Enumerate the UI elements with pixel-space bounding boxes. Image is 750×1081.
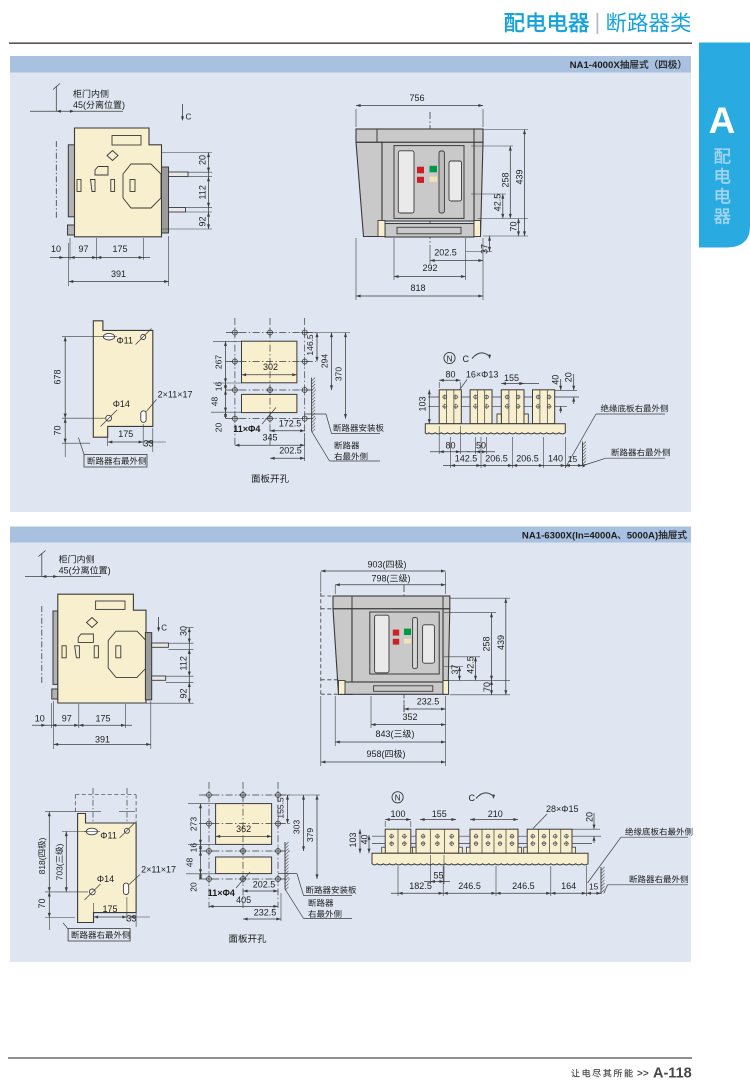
svg-text:292: 292 <box>423 263 438 273</box>
svg-text:33: 33 <box>144 439 154 449</box>
svg-text:182.5: 182.5 <box>409 881 432 891</box>
svg-text:): ) <box>37 837 47 840</box>
svg-text:302: 302 <box>263 362 278 372</box>
svg-text:405: 405 <box>236 895 251 905</box>
svg-text:352: 352 <box>403 712 418 722</box>
svg-text:Φ11: Φ11 <box>117 336 134 346</box>
svg-text:33: 33 <box>127 914 137 924</box>
svg-text:C: C <box>186 113 192 122</box>
svg-text:A: A <box>709 100 736 141</box>
svg-text:45(: 45( <box>59 566 72 576</box>
svg-text:37: 37 <box>480 244 490 254</box>
svg-text:70: 70 <box>482 682 492 692</box>
svg-text:): ) <box>412 729 415 739</box>
svg-text:11×Φ4: 11×Φ4 <box>233 424 260 434</box>
svg-text:202.5: 202.5 <box>279 446 302 456</box>
svg-text:48: 48 <box>209 396 219 406</box>
svg-text:155: 155 <box>504 373 519 383</box>
svg-text:70: 70 <box>509 221 519 231</box>
svg-text:818(: 818( <box>37 857 47 874</box>
svg-text:C: C <box>463 354 470 364</box>
svg-text:16: 16 <box>188 843 198 853</box>
svg-text:Φ14: Φ14 <box>113 399 130 409</box>
svg-text:294: 294 <box>320 354 330 368</box>
svg-text:40: 40 <box>360 834 370 844</box>
svg-text:): ) <box>404 560 407 570</box>
svg-text:92: 92 <box>178 688 188 698</box>
svg-text:70: 70 <box>37 898 47 908</box>
svg-text:): ) <box>54 843 64 846</box>
svg-text:391: 391 <box>111 269 126 279</box>
svg-text:Φ11: Φ11 <box>100 831 117 841</box>
svg-text:175: 175 <box>118 429 133 439</box>
svg-text:103: 103 <box>418 396 428 411</box>
svg-text:175: 175 <box>96 714 111 724</box>
svg-text:20: 20 <box>584 812 594 822</box>
svg-text:28×Φ15: 28×Φ15 <box>546 804 578 814</box>
svg-text:42.5: 42.5 <box>493 194 503 212</box>
svg-text:112: 112 <box>198 185 208 199</box>
svg-text:202.5: 202.5 <box>253 880 276 890</box>
svg-text:5000A): 5000A) <box>627 530 658 541</box>
svg-text:703(: 703( <box>54 863 64 880</box>
svg-text:843(: 843( <box>376 729 394 739</box>
svg-text:): ) <box>108 566 111 576</box>
svg-text:232.5: 232.5 <box>417 697 440 707</box>
svg-text:48: 48 <box>184 857 194 867</box>
svg-text:NA1-6300X(In=4000A: NA1-6300X(In=4000A <box>522 530 618 541</box>
svg-text:N: N <box>447 354 453 363</box>
svg-text:2×11×17: 2×11×17 <box>158 390 193 400</box>
svg-text:): ) <box>408 574 411 584</box>
svg-text:370: 370 <box>334 367 344 381</box>
svg-text:202.5: 202.5 <box>434 248 457 258</box>
svg-text:20: 20 <box>188 882 198 892</box>
svg-text:20: 20 <box>563 372 573 382</box>
svg-text:112: 112 <box>178 656 188 670</box>
svg-text:42.5: 42.5 <box>466 656 476 674</box>
svg-text:10: 10 <box>35 714 45 724</box>
svg-text:Φ14: Φ14 <box>97 874 114 884</box>
svg-text:175: 175 <box>103 904 118 914</box>
svg-text:A-118: A-118 <box>653 1066 692 1081</box>
svg-text:16×Φ13: 16×Φ13 <box>466 370 498 380</box>
svg-text:164: 164 <box>561 881 576 891</box>
svg-text:258: 258 <box>501 172 511 187</box>
svg-text:40: 40 <box>550 375 560 385</box>
svg-text:11×Φ4: 11×Φ4 <box>208 888 235 898</box>
svg-text:>>: >> <box>637 1069 649 1080</box>
svg-text:362: 362 <box>236 824 251 834</box>
svg-text:C: C <box>161 624 167 633</box>
svg-text:103: 103 <box>348 832 358 847</box>
svg-text:97: 97 <box>62 714 72 724</box>
svg-text:232.5: 232.5 <box>254 908 277 918</box>
svg-text:): ) <box>122 100 125 110</box>
svg-text:210: 210 <box>488 809 503 819</box>
svg-text:45(: 45( <box>73 100 86 110</box>
svg-text:246.5: 246.5 <box>512 881 535 891</box>
svg-text:140: 140 <box>548 454 563 464</box>
svg-text:818: 818 <box>411 283 426 293</box>
svg-text:2×11×17: 2×11×17 <box>141 865 176 875</box>
svg-text:20: 20 <box>198 155 208 165</box>
svg-text:10: 10 <box>51 244 61 254</box>
svg-text:37: 37 <box>450 664 460 674</box>
svg-text:55: 55 <box>434 871 444 881</box>
svg-text:903(: 903( <box>368 560 386 570</box>
svg-text:439: 439 <box>496 635 506 650</box>
svg-text:30: 30 <box>178 626 188 636</box>
svg-text:267: 267 <box>213 355 223 369</box>
svg-text:175: 175 <box>113 244 128 254</box>
svg-text:70: 70 <box>53 425 63 435</box>
svg-text:273: 273 <box>188 817 198 831</box>
svg-text:391: 391 <box>95 735 110 745</box>
svg-text:172.5: 172.5 <box>279 419 302 429</box>
svg-text:439: 439 <box>515 169 525 184</box>
svg-text:NA1-4000X: NA1-4000X <box>570 60 621 71</box>
svg-text:206.5: 206.5 <box>485 454 508 464</box>
svg-text:155.5: 155.5 <box>276 797 286 819</box>
svg-text:206.5: 206.5 <box>516 454 539 464</box>
svg-text:155: 155 <box>432 809 447 819</box>
svg-text:15: 15 <box>589 882 599 892</box>
svg-text:20: 20 <box>213 422 223 432</box>
svg-text:379: 379 <box>305 828 315 842</box>
svg-text:92: 92 <box>198 216 208 226</box>
svg-text:303: 303 <box>292 820 302 834</box>
svg-text:80: 80 <box>446 370 456 380</box>
svg-text:N: N <box>395 794 401 803</box>
svg-text:16: 16 <box>213 381 223 391</box>
svg-text:756: 756 <box>410 93 425 103</box>
svg-text:97: 97 <box>79 244 89 254</box>
svg-text:798(: 798( <box>372 574 390 584</box>
svg-text:C: C <box>469 793 476 803</box>
svg-text:345: 345 <box>263 433 278 443</box>
svg-text:258: 258 <box>482 636 492 651</box>
svg-text:146.5: 146.5 <box>305 334 315 356</box>
svg-text:246.5: 246.5 <box>458 881 481 891</box>
svg-text:100: 100 <box>391 809 406 819</box>
svg-text:678: 678 <box>53 369 63 384</box>
svg-text:958(: 958( <box>367 749 385 759</box>
svg-text:142.5: 142.5 <box>455 454 478 464</box>
svg-text:): ) <box>403 749 406 759</box>
